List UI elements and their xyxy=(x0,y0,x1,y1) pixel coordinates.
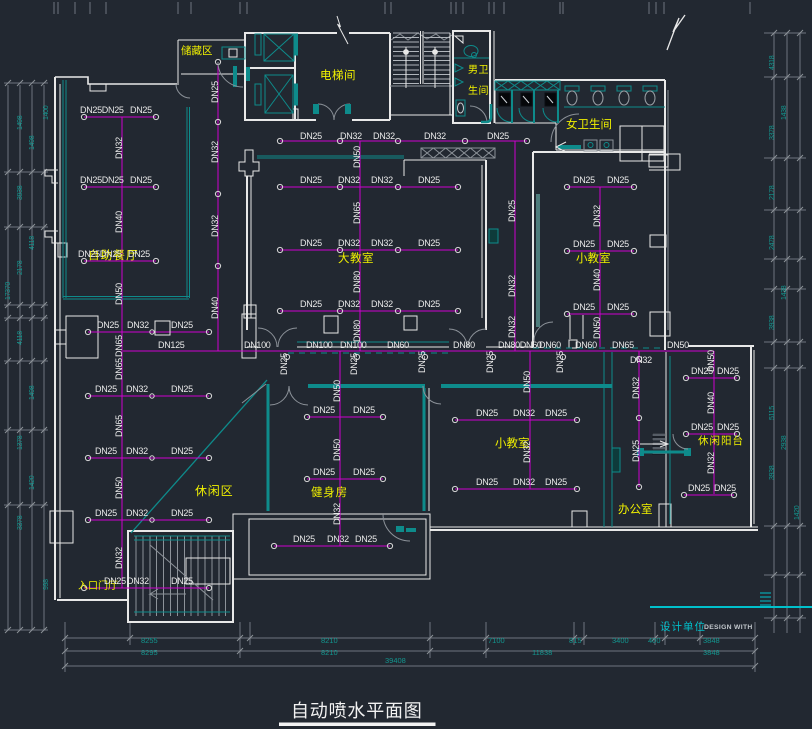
svg-text:3378: 3378 xyxy=(769,125,776,140)
svg-text:4318: 4318 xyxy=(769,55,776,70)
svg-text:DN25: DN25 xyxy=(128,249,150,259)
svg-text:DN25: DN25 xyxy=(171,576,193,586)
svg-text:女卫生间: 女卫生间 xyxy=(566,117,612,131)
svg-text:815: 815 xyxy=(569,636,582,645)
svg-text:17370: 17370 xyxy=(5,282,12,300)
svg-text:DN32: DN32 xyxy=(127,320,149,330)
svg-text:8295: 8295 xyxy=(141,648,158,657)
svg-text:1420: 1420 xyxy=(794,505,801,520)
svg-text:DN25: DN25 xyxy=(545,477,567,487)
svg-text:DN32: DN32 xyxy=(340,131,362,141)
svg-text:DN25: DN25 xyxy=(691,422,713,432)
svg-text:3848: 3848 xyxy=(703,636,720,645)
svg-text:DN65: DN65 xyxy=(114,335,124,357)
svg-text:DN25: DN25 xyxy=(418,175,440,185)
svg-text:DN32: DN32 xyxy=(706,452,716,474)
svg-text:DN25: DN25 xyxy=(573,239,595,249)
svg-text:DN25: DN25 xyxy=(476,477,498,487)
svg-text:3938: 3938 xyxy=(769,465,776,480)
svg-text:DN32: DN32 xyxy=(338,238,360,248)
svg-text:39408: 39408 xyxy=(385,656,406,665)
svg-text:8255: 8255 xyxy=(141,636,158,645)
svg-text:DN40: DN40 xyxy=(706,392,716,414)
svg-text:DN25: DN25 xyxy=(476,408,498,418)
svg-text:DN25: DN25 xyxy=(210,81,220,103)
svg-text:3400: 3400 xyxy=(612,636,629,645)
svg-text:3938: 3938 xyxy=(769,315,776,330)
svg-text:DN32: DN32 xyxy=(513,477,535,487)
svg-text:DN32: DN32 xyxy=(126,446,148,456)
svg-text:DN25: DN25 xyxy=(717,366,739,376)
svg-text:DN65: DN65 xyxy=(352,202,362,224)
svg-text:DN25: DN25 xyxy=(130,105,152,115)
svg-text:DN25: DN25 xyxy=(607,302,629,312)
svg-text:DN32: DN32 xyxy=(338,175,360,185)
svg-text:DN50: DN50 xyxy=(332,439,342,461)
svg-text:DN50: DN50 xyxy=(667,340,689,350)
svg-text:DN25: DN25 xyxy=(353,405,375,415)
svg-text:DN32: DN32 xyxy=(210,215,220,237)
svg-text:DN25: DN25 xyxy=(171,384,193,394)
svg-text:DN25: DN25 xyxy=(97,320,119,330)
svg-text:DN100: DN100 xyxy=(244,340,271,350)
svg-text:5115: 5115 xyxy=(769,406,776,420)
svg-text:DN80: DN80 xyxy=(352,271,362,293)
svg-text:大教室: 大教室 xyxy=(338,251,374,265)
svg-text:DN32: DN32 xyxy=(126,508,148,518)
svg-text:DN25: DN25 xyxy=(95,508,117,518)
svg-text:DN32: DN32 xyxy=(630,355,652,365)
svg-text:DN25: DN25 xyxy=(300,131,322,141)
svg-text:3938: 3938 xyxy=(17,185,24,200)
svg-text:DN40: DN40 xyxy=(592,269,602,291)
svg-text:DN40: DN40 xyxy=(210,297,220,319)
svg-text:DN32: DN32 xyxy=(592,205,602,227)
svg-text:DN25: DN25 xyxy=(607,175,629,185)
svg-text:7100: 7100 xyxy=(488,636,505,645)
svg-text:2478: 2478 xyxy=(769,235,776,250)
svg-text:DN60: DN60 xyxy=(539,340,561,350)
svg-text:设计单位: 设计单位 xyxy=(660,620,706,633)
svg-text:1378: 1378 xyxy=(17,435,24,450)
svg-text:DN60: DN60 xyxy=(387,340,409,350)
svg-text:DN32: DN32 xyxy=(371,238,393,248)
svg-text:DN65: DN65 xyxy=(114,358,124,380)
svg-text:1438: 1438 xyxy=(781,285,788,300)
svg-text:DN50: DN50 xyxy=(706,350,716,372)
svg-text:DN25: DN25 xyxy=(607,239,629,249)
svg-text:办公室: 办公室 xyxy=(618,502,653,516)
svg-text:DN32: DN32 xyxy=(126,384,148,394)
svg-text:DN25: DN25 xyxy=(717,422,739,432)
svg-text:DN25: DN25 xyxy=(313,467,335,477)
svg-text:DN32: DN32 xyxy=(332,503,342,525)
svg-text:DN32: DN32 xyxy=(114,137,124,159)
svg-text:生间: 生间 xyxy=(468,84,489,97)
svg-text:DN25: DN25 xyxy=(714,483,736,493)
svg-text:DN125: DN125 xyxy=(158,340,185,350)
svg-text:1420: 1420 xyxy=(29,475,36,490)
svg-text:DN40: DN40 xyxy=(114,211,124,233)
svg-text:DN25: DN25 xyxy=(353,467,375,477)
svg-text:DN32: DN32 xyxy=(127,576,149,586)
svg-text:DN25: DN25 xyxy=(104,576,126,586)
svg-text:400: 400 xyxy=(648,636,661,645)
svg-text:DN50: DN50 xyxy=(332,380,342,402)
svg-text:DN32: DN32 xyxy=(114,547,124,569)
svg-text:DN32: DN32 xyxy=(424,131,446,141)
svg-text:自动喷水平面图: 自动喷水平面图 xyxy=(291,701,423,721)
svg-text:DN50: DN50 xyxy=(114,477,124,499)
svg-text:DN25: DN25 xyxy=(485,351,495,373)
svg-text:DN32: DN32 xyxy=(338,299,360,309)
svg-text:DN25: DN25 xyxy=(507,200,517,222)
svg-text:3848: 3848 xyxy=(703,648,720,657)
svg-text:DN32: DN32 xyxy=(513,408,535,418)
svg-text:DN25: DN25 xyxy=(313,405,335,415)
svg-text:DN25: DN25 xyxy=(417,351,427,373)
svg-text:DN32: DN32 xyxy=(373,131,395,141)
svg-text:DN100: DN100 xyxy=(306,340,333,350)
svg-text:小教室: 小教室 xyxy=(576,251,611,265)
svg-text:DN32: DN32 xyxy=(371,299,393,309)
svg-text:DN25: DN25 xyxy=(487,131,509,141)
svg-text:DN25: DN25 xyxy=(171,320,193,330)
svg-text:2938: 2938 xyxy=(781,435,788,450)
svg-text:DN25: DN25 xyxy=(300,238,322,248)
svg-text:11838: 11838 xyxy=(532,648,552,657)
svg-text:DN32: DN32 xyxy=(631,377,641,399)
svg-text:DN25: DN25 xyxy=(171,508,193,518)
svg-text:DN25: DN25 xyxy=(300,299,322,309)
svg-text:DN32: DN32 xyxy=(371,175,393,185)
svg-text:DN80: DN80 xyxy=(453,340,475,350)
svg-text:DN25: DN25 xyxy=(573,175,595,185)
svg-text:DN25: DN25 xyxy=(418,299,440,309)
svg-text:DN25: DN25 xyxy=(573,302,595,312)
svg-text:2178: 2178 xyxy=(17,260,24,275)
svg-text:储藏区: 储藏区 xyxy=(181,44,213,57)
svg-text:DN65: DN65 xyxy=(114,415,124,437)
svg-text:3378: 3378 xyxy=(17,515,24,530)
svg-text:1498: 1498 xyxy=(17,115,24,130)
svg-text:DN25: DN25 xyxy=(545,408,567,418)
svg-text:DN25: DN25 xyxy=(688,483,710,493)
svg-text:DN32: DN32 xyxy=(522,441,532,463)
svg-text:休闲区: 休闲区 xyxy=(195,484,233,498)
svg-text:1400: 1400 xyxy=(43,105,50,120)
svg-text:DN60: DN60 xyxy=(575,340,597,350)
svg-text:DN25: DN25 xyxy=(418,238,440,248)
svg-text:DN32: DN32 xyxy=(327,534,349,544)
svg-text:DN50: DN50 xyxy=(522,371,532,393)
svg-text:DN50: DN50 xyxy=(114,283,124,305)
svg-text:DN25: DN25 xyxy=(293,534,315,544)
svg-text:DN25: DN25 xyxy=(300,175,322,185)
svg-text:DN80: DN80 xyxy=(352,320,362,342)
svg-text:DN65: DN65 xyxy=(612,340,634,350)
svg-text:DN32: DN32 xyxy=(507,316,517,338)
svg-text:1498: 1498 xyxy=(29,135,36,150)
svg-text:1498: 1498 xyxy=(29,385,36,400)
svg-text:DN50: DN50 xyxy=(352,146,362,168)
svg-text:8210: 8210 xyxy=(321,636,338,645)
svg-text:DN25: DN25 xyxy=(355,534,377,544)
svg-text:DN25: DN25 xyxy=(349,353,359,375)
svg-text:998: 998 xyxy=(43,579,50,590)
svg-text:DN25: DN25 xyxy=(130,175,152,185)
svg-text:1438: 1438 xyxy=(781,105,788,120)
svg-text:DN25: DN25 xyxy=(171,446,193,456)
svg-text:2178: 2178 xyxy=(769,185,776,200)
svg-text:4118: 4118 xyxy=(17,331,24,345)
svg-text:DN32: DN32 xyxy=(507,275,517,297)
svg-text:DN25: DN25 xyxy=(555,351,565,373)
svg-text:DN25: DN25 xyxy=(279,353,289,375)
svg-text:DN25: DN25 xyxy=(95,384,117,394)
svg-text:休闲阳台: 休闲阳台 xyxy=(698,434,744,447)
svg-text:DESIGN WITH: DESIGN WITH xyxy=(704,624,753,631)
svg-text:4118: 4118 xyxy=(29,236,36,250)
svg-text:DN32: DN32 xyxy=(210,141,220,163)
svg-text:DN25DN25: DN25DN25 xyxy=(80,105,124,115)
svg-text:DN25DN25: DN25DN25 xyxy=(80,175,124,185)
svg-text:DN25: DN25 xyxy=(95,446,117,456)
svg-text:DN80DN60: DN80DN60 xyxy=(498,340,542,350)
svg-text:健身房: 健身房 xyxy=(311,485,348,499)
svg-text:DN25DN25: DN25DN25 xyxy=(78,249,122,259)
svg-text:电梯间: 电梯间 xyxy=(320,69,356,82)
svg-text:DN50: DN50 xyxy=(592,317,602,339)
svg-text:男卫: 男卫 xyxy=(468,64,489,76)
svg-text:DN25: DN25 xyxy=(631,440,641,462)
svg-text:8210: 8210 xyxy=(321,648,338,657)
